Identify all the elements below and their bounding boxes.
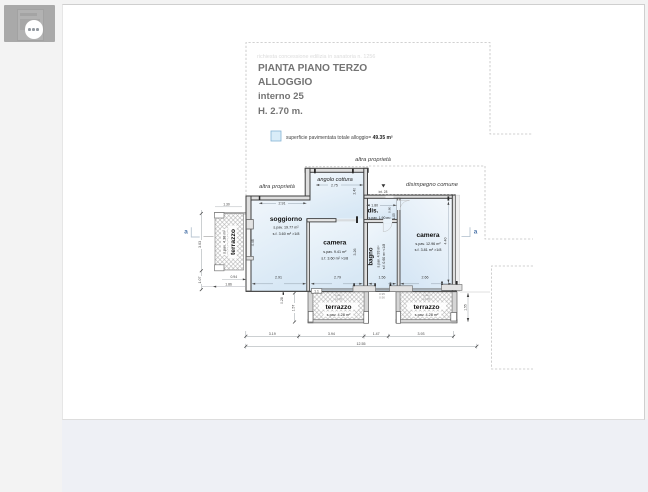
svg-text:2.91: 2.91	[275, 276, 282, 280]
svg-text:s.f. 3.60 m² >1/8: s.f. 3.60 m² >1/8	[273, 232, 300, 236]
svg-text:camera: camera	[323, 240, 346, 247]
svg-text:1.56: 1.56	[379, 276, 386, 280]
svg-text:3.94: 3.94	[328, 332, 335, 336]
svg-text:altra proprietà: altra proprietà	[355, 157, 392, 163]
svg-text:s.pav. 4.93 m²: s.pav. 4.93 m²	[377, 245, 381, 268]
svg-text:a: a	[474, 229, 478, 236]
svg-text:3.93: 3.93	[418, 332, 425, 336]
svg-text:s.pav. 1.90 m²: s.pav. 1.90 m²	[369, 216, 392, 220]
svg-text:altra proprietà: altra proprietà	[259, 184, 296, 190]
svg-text:ALLOGGIO: ALLOGGIO	[258, 77, 312, 88]
svg-text:s.pav. 4.28 m²: s.pav. 4.28 m²	[415, 313, 440, 317]
svg-text:s.f. 0.60 m² <1/8: s.f. 0.60 m² <1/8	[382, 244, 386, 269]
svg-text:1.47: 1.47	[373, 332, 380, 336]
svg-text:terrazzo: terrazzo	[230, 229, 237, 255]
svg-text:1.1: 1.1	[314, 289, 319, 293]
svg-text:terrazzo: terrazzo	[413, 304, 439, 311]
svg-text:1.86: 1.86	[225, 282, 232, 286]
svg-text:bagno: bagno	[369, 247, 375, 265]
svg-text:int. 28: int. 28	[379, 190, 388, 194]
svg-text:superficie pavimentata totale: superficie pavimentata totale alloggio= …	[286, 135, 393, 141]
svg-text:disimpegno comune: disimpegno comune	[406, 182, 459, 188]
svg-text:3.26: 3.26	[353, 249, 357, 256]
svg-text:s.pav. 4.28 m²: s.pav. 4.28 m²	[327, 313, 352, 317]
svg-text:4.46: 4.46	[251, 239, 255, 246]
svg-text:0.28: 0.28	[280, 297, 284, 304]
svg-text:0.90: 0.90	[379, 296, 385, 300]
svg-text:2.75: 2.75	[331, 184, 338, 188]
svg-text:+0.05: +0.05	[423, 297, 431, 301]
svg-text:3.03: 3.03	[198, 241, 202, 248]
svg-text:2.66: 2.66	[422, 276, 429, 280]
svg-text:1.30: 1.30	[223, 202, 230, 206]
svg-text:1.05: 1.05	[392, 213, 396, 219]
svg-text:s.pav. 12.96 m²: s.pav. 12.96 m²	[415, 242, 441, 246]
svg-text:1.55: 1.55	[464, 304, 468, 311]
svg-text:12.55: 12.55	[357, 342, 366, 346]
svg-text:soggiorno: soggiorno	[270, 216, 302, 223]
svg-text:s.pav. 9.41 m²: s.pav. 9.41 m²	[323, 250, 347, 254]
svg-text:1.07: 1.07	[198, 277, 202, 284]
svg-text:s.f. 3.81 m² >1/8: s.f. 3.81 m² >1/8	[415, 248, 442, 252]
svg-text:4.40: 4.40	[444, 238, 448, 245]
svg-text:1.57: 1.57	[291, 305, 295, 312]
svg-text:2.91: 2.91	[279, 202, 286, 206]
svg-text:3.19: 3.19	[269, 332, 276, 336]
svg-text:2.40: 2.40	[353, 188, 357, 195]
svg-text:dis.: dis.	[368, 207, 379, 214]
svg-text:H. 2.70 m.: H. 2.70 m.	[258, 106, 303, 117]
svg-text:PIANTA PIANO TERZO: PIANTA PIANO TERZO	[258, 63, 367, 74]
svg-text:angolo cottura: angolo cottura	[317, 177, 352, 183]
svg-text:2.79: 2.79	[334, 276, 341, 280]
svg-text:terrazzo: terrazzo	[325, 304, 351, 311]
svg-text:richiesta concessione edilizia: richiesta concessione edilizia in sanato…	[257, 54, 375, 60]
svg-text:a: a	[184, 229, 188, 236]
svg-text:camera: camera	[416, 232, 439, 239]
svg-text:+0.05: +0.05	[335, 297, 343, 301]
svg-text:0.94: 0.94	[230, 275, 237, 279]
svg-text:s.pav. 19.77 m²: s.pav. 19.77 m²	[273, 225, 299, 229]
svg-text:s.pav. 4.38 m²: s.pav. 4.38 m²	[222, 229, 226, 254]
svg-text:s.f. 3.60 m² >1/8: s.f. 3.60 m² >1/8	[321, 257, 348, 261]
svg-text:0.80: 0.80	[388, 207, 392, 213]
svg-text:1.80: 1.80	[371, 204, 378, 208]
svg-text:interno 25: interno 25	[258, 91, 305, 102]
